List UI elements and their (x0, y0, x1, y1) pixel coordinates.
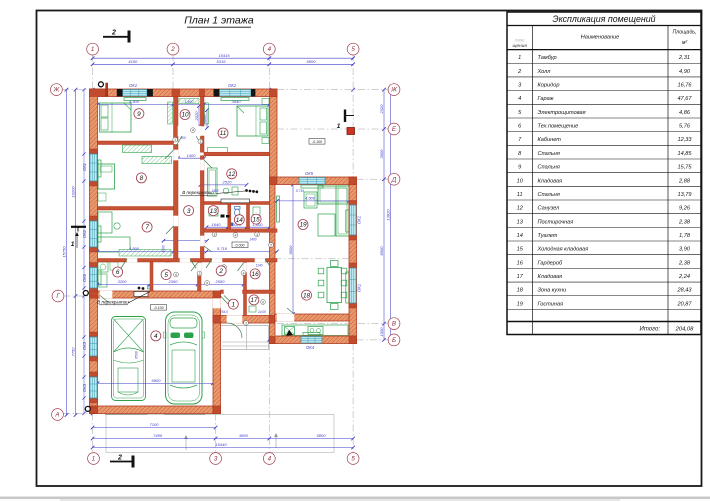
svg-text:2,38: 2,38 (678, 260, 691, 266)
svg-text:м²: м² (682, 40, 688, 46)
svg-text:ОК2: ОК2 (82, 229, 87, 238)
svg-text:поме: поме (515, 38, 526, 43)
svg-text:5316: 5316 (217, 59, 227, 64)
svg-text:2: 2 (111, 30, 116, 37)
svg-text:ОК3: ОК3 (82, 383, 87, 392)
svg-text:Зона кухни: Зона кухни (538, 288, 567, 294)
svg-text:Экспликация помещений: Экспликация помещений (552, 14, 655, 24)
svg-text:1400: 1400 (187, 153, 197, 158)
svg-text:4: 4 (243, 271, 245, 275)
svg-text:154,0: 154,0 (220, 310, 228, 314)
svg-text:Спальня: Спальня (538, 165, 560, 171)
svg-text:7480: 7480 (153, 433, 163, 438)
svg-text:ОК1: ОК1 (129, 83, 137, 88)
svg-text:Тех.помещение: Тех.помещение (538, 124, 579, 130)
svg-text:13: 13 (210, 208, 218, 215)
svg-text:Холодная кладовая: Холодная кладовая (537, 247, 589, 253)
svg-text:ОК3: ОК3 (82, 341, 87, 350)
svg-text:Тамбур: Тамбур (538, 55, 557, 61)
svg-text:Площадь,: Площадь, (673, 30, 697, 36)
svg-text:3: 3 (214, 456, 218, 463)
svg-text:ОК1: ОК1 (228, 83, 236, 88)
svg-text:Спальня: Спальня (538, 192, 560, 198)
svg-text:В: В (392, 321, 396, 328)
svg-text:ОК5: ОК5 (305, 171, 314, 176)
svg-text:Наименование: Наименование (581, 35, 620, 41)
svg-text:6500: 6500 (134, 351, 138, 359)
svg-text:4,90: 4,90 (679, 69, 691, 75)
svg-text:14: 14 (517, 233, 523, 239)
svg-text:0.000: 0.000 (236, 243, 245, 247)
svg-text:Гараж: Гараж (538, 96, 555, 102)
svg-text:Ж: Ж (53, 87, 60, 94)
svg-text:1: 1 (91, 46, 94, 53)
svg-text:Кладовая: Кладовая (538, 178, 563, 184)
svg-text:5800: 5800 (317, 433, 327, 438)
svg-text:19: 19 (517, 301, 523, 307)
svg-text:16: 16 (517, 260, 524, 266)
svg-text:10200: 10200 (70, 186, 75, 198)
svg-text:А: А (54, 412, 59, 419)
svg-text:7750: 7750 (70, 347, 75, 357)
svg-text:11: 11 (220, 130, 227, 137)
svg-text:2360: 2360 (168, 279, 179, 284)
svg-text:4: 4 (268, 456, 272, 463)
svg-text:2,88: 2,88 (678, 178, 691, 184)
svg-text:14,85: 14,85 (678, 151, 693, 157)
svg-text:1: 1 (71, 241, 75, 248)
svg-text:4: 4 (154, 333, 158, 340)
svg-text:2,38: 2,38 (678, 219, 691, 225)
svg-text:14,00: 14,00 (258, 310, 266, 314)
svg-text:15416: 15416 (218, 53, 230, 58)
svg-text:9: 9 (518, 165, 521, 171)
svg-text:-0.100: -0.100 (312, 140, 322, 144)
svg-text:3060: 3060 (162, 245, 166, 253)
svg-text:-0.100: -0.100 (153, 306, 163, 310)
svg-text:10: 10 (517, 178, 524, 184)
svg-text:8: 8 (206, 281, 208, 285)
svg-text:3,90: 3,90 (679, 247, 691, 253)
svg-text:3940: 3940 (232, 99, 242, 104)
svg-text:5,716: 5,716 (217, 246, 228, 251)
svg-text:1: 1 (518, 55, 521, 61)
svg-text:7100: 7100 (150, 422, 160, 427)
svg-text:8: 8 (140, 175, 144, 182)
svg-text:3: 3 (187, 208, 191, 215)
svg-text:4: 4 (192, 129, 194, 133)
svg-text:4: 4 (235, 233, 237, 237)
svg-text:11: 11 (517, 192, 523, 198)
svg-text:Кабинет: Кабинет (538, 137, 562, 143)
svg-text:7: 7 (145, 224, 149, 231)
svg-text:щения: щения (513, 43, 528, 48)
svg-text:5: 5 (164, 272, 168, 279)
svg-text:1140: 1140 (256, 264, 263, 268)
svg-text:5: 5 (351, 456, 355, 463)
svg-text:ОК1: ОК1 (82, 163, 87, 171)
svg-text:15,75: 15,75 (678, 165, 693, 171)
svg-text:2,31: 2,31 (678, 55, 690, 61)
svg-text:6: 6 (175, 273, 177, 277)
svg-text:4,500: 4,500 (305, 196, 316, 201)
svg-text:9,26: 9,26 (679, 206, 691, 212)
svg-text:4,500: 4,500 (129, 246, 140, 251)
svg-text:Электрощитовая: Электрощитовая (538, 110, 586, 116)
svg-text:204,08: 204,08 (675, 327, 695, 333)
svg-text:Гостиная: Гостиная (538, 301, 564, 307)
svg-text:2: 2 (218, 268, 223, 275)
svg-text:3: 3 (199, 272, 201, 276)
svg-text:ОК4: ОК4 (306, 345, 315, 350)
svg-text:18: 18 (517, 288, 524, 294)
svg-text:1: 1 (232, 301, 236, 308)
svg-text:12,33: 12,33 (678, 137, 693, 143)
svg-text:13,79: 13,79 (678, 192, 692, 198)
svg-text:1400: 1400 (249, 238, 256, 242)
svg-text:10: 10 (181, 112, 189, 119)
svg-text:16: 16 (252, 271, 260, 278)
svg-text:ОК1: ОК1 (357, 284, 362, 292)
svg-text:9: 9 (137, 111, 141, 118)
svg-text:1: 1 (92, 456, 95, 463)
svg-text:ОК6: ОК6 (82, 273, 87, 282)
svg-text:12: 12 (517, 206, 524, 212)
svg-text:4,86: 4,86 (679, 110, 691, 116)
svg-text:Коридор: Коридор (538, 83, 560, 89)
svg-text:Д: Д (391, 176, 397, 183)
svg-text:1: 1 (174, 138, 176, 142)
svg-text:Кладовая: Кладовая (538, 274, 563, 280)
svg-text:3: 3 (200, 140, 202, 144)
svg-text:2520: 2520 (222, 180, 233, 185)
svg-text:3200: 3200 (118, 279, 128, 284)
svg-text:В перекрытии: В перекрытии (97, 299, 129, 304)
svg-text:15750: 15750 (61, 246, 66, 258)
svg-text:5: 5 (270, 243, 272, 247)
svg-text:План 1 этажа: План 1 этажа (184, 15, 254, 27)
svg-text:15440: 15440 (215, 442, 227, 447)
svg-text:2,24: 2,24 (678, 274, 690, 280)
svg-text:2: 2 (170, 46, 175, 53)
svg-text:15: 15 (517, 247, 524, 253)
svg-text:5,716: 5,716 (296, 189, 304, 193)
svg-text:5: 5 (351, 46, 355, 53)
svg-text:5800: 5800 (307, 59, 317, 64)
svg-text:13820: 13820 (385, 209, 390, 221)
svg-text:Постирочная: Постирочная (538, 219, 574, 225)
svg-text:28,43: 28,43 (677, 288, 693, 294)
svg-text:Гардероб: Гардероб (538, 260, 564, 266)
svg-text:4,500: 4,500 (129, 99, 140, 104)
svg-text:Холл: Холл (537, 69, 552, 75)
svg-text:4150: 4150 (128, 59, 138, 64)
svg-text:6: 6 (262, 300, 264, 304)
svg-text:2320: 2320 (379, 104, 384, 115)
svg-text:3: 3 (245, 321, 247, 325)
svg-text:15: 15 (253, 216, 261, 223)
svg-text:5,76: 5,76 (679, 124, 691, 130)
svg-text:14: 14 (236, 217, 244, 224)
svg-text:1,78: 1,78 (679, 233, 691, 239)
svg-text:1400: 1400 (185, 99, 195, 104)
svg-text:2020: 2020 (194, 111, 199, 122)
svg-text:17: 17 (517, 274, 524, 280)
svg-text:8500: 8500 (379, 246, 384, 256)
svg-text:1: 1 (337, 123, 341, 130)
svg-text:2: 2 (117, 455, 122, 462)
svg-text:1500: 1500 (379, 327, 384, 337)
svg-text:6900: 6900 (152, 378, 162, 383)
svg-text:4: 4 (518, 96, 521, 102)
svg-text:9000: 9000 (288, 245, 293, 255)
svg-text:Ж: Ж (390, 87, 397, 94)
svg-text:Санузел: Санузел (538, 206, 561, 212)
svg-text:3860: 3860 (239, 433, 249, 438)
svg-text:ОК1: ОК1 (357, 216, 362, 224)
svg-text:12: 12 (228, 171, 236, 178)
svg-text:19: 19 (299, 222, 307, 229)
svg-text:47,67: 47,67 (678, 96, 693, 102)
svg-text:1640: 1640 (212, 222, 222, 227)
svg-text:20,87: 20,87 (677, 301, 693, 307)
svg-text:Туалет: Туалет (538, 233, 558, 239)
svg-text:16,76: 16,76 (678, 83, 693, 89)
svg-text:Спальня: Спальня (538, 151, 560, 157)
svg-text:5: 5 (214, 233, 216, 237)
svg-text:6: 6 (116, 269, 120, 276)
svg-text:18: 18 (303, 292, 311, 299)
svg-text:13: 13 (517, 219, 524, 225)
svg-text:Итого:: Итого: (640, 327, 661, 333)
svg-text:17: 17 (250, 297, 258, 304)
svg-text:Б: Б (392, 337, 396, 344)
svg-text:В перекрытии: В перекрытии (182, 190, 214, 195)
svg-text:4: 4 (268, 46, 272, 53)
svg-text:4: 4 (256, 233, 258, 237)
svg-text:3600: 3600 (379, 149, 384, 159)
svg-text:2550: 2550 (215, 279, 226, 284)
